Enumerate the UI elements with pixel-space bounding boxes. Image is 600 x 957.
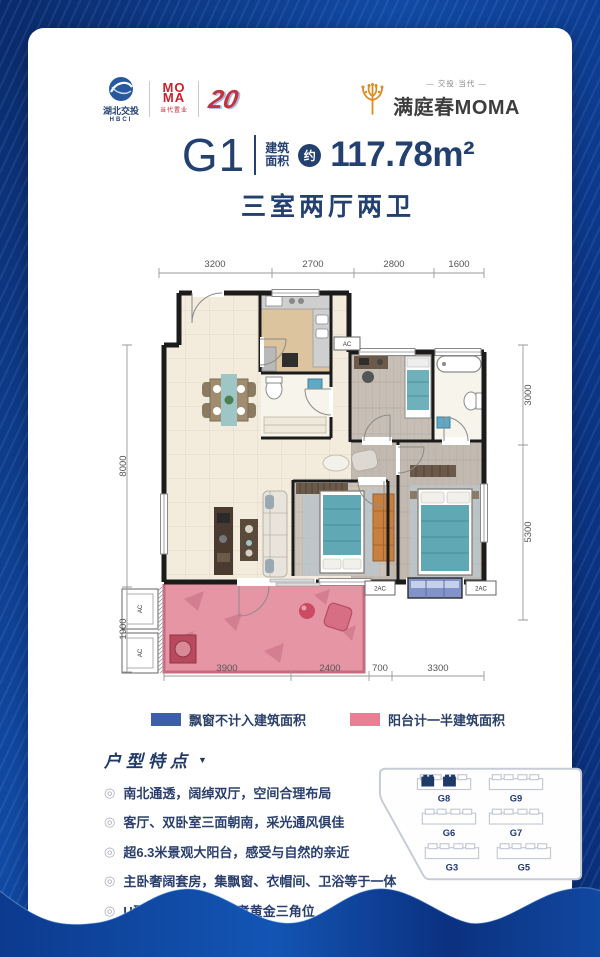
bullet-icon: ◎ xyxy=(104,815,115,828)
dim-left-1: 8000 xyxy=(118,455,129,476)
building-label: G7 xyxy=(510,828,523,838)
floor-plan: AC 2AC 2AC AC AC 3200 2700 2800 1600 390… xyxy=(114,239,538,701)
building-label: G5 xyxy=(518,862,531,872)
bay-window xyxy=(408,578,462,598)
site-boundary xyxy=(380,769,581,879)
feature-text: 客厅、双卧室三面朝南，采光通风俱佳 xyxy=(123,812,344,831)
dining-table xyxy=(202,374,256,426)
building-label: G8 xyxy=(438,793,451,803)
bottom-wave xyxy=(0,877,600,957)
legend-swatch-blue xyxy=(151,713,181,726)
ac-label: AC xyxy=(343,342,352,348)
ac-label: 2AC xyxy=(475,587,487,593)
brand-tagline: — 交投·当代 — xyxy=(426,78,487,89)
balcony xyxy=(164,584,364,672)
building-label: G3 xyxy=(446,862,459,872)
dim-bottom-2: 2400 xyxy=(319,663,340,674)
dim-right-2: 5300 xyxy=(523,521,534,542)
dim-top-2: 2700 xyxy=(302,259,323,270)
legend: 飘窗不计入建筑面积 阳台计一半建筑面积 xyxy=(28,710,600,729)
legend-label: 飘窗不计入建筑面积 xyxy=(189,710,306,729)
hbci-logo: 湖北交投 HBCI xyxy=(103,76,139,123)
moma-sub: 当代置业 xyxy=(160,106,188,116)
dim-top-4: 1600 xyxy=(448,259,469,270)
feature-item: ◎ 客厅、双卧室三面朝南，采光通风俱佳 xyxy=(104,812,409,831)
site-plan: G8 G9 G6 G7 G3 G5 xyxy=(376,764,588,886)
dim-bottom-4: 3300 xyxy=(427,663,448,674)
brand-name: 满庭春MOMA xyxy=(393,91,520,120)
moma-line2: MA xyxy=(163,93,185,103)
building-label: G9 xyxy=(510,793,523,803)
area-caption: 建筑 面积 xyxy=(265,142,289,168)
dim-bottom-1: 3900 xyxy=(216,663,237,674)
feature-item: ◎ 南北通透，阔绰双厅，空间合理布局 xyxy=(104,783,409,802)
balcony-ball xyxy=(299,603,315,619)
dim-top-1: 3200 xyxy=(204,259,225,270)
hbci-sub: HBCI xyxy=(110,117,133,123)
bedroom2-furniture xyxy=(296,483,394,575)
unit-code: G1 xyxy=(182,128,245,182)
feature-item: ◎ 超6.3米景观大阳台，感受与自然的亲近 xyxy=(104,842,409,861)
poster-page: { "header": { "hbci": { "name": "湖北交投", … xyxy=(0,0,600,957)
ac-label: AC xyxy=(138,648,144,657)
anniversary-20-badge: 20 xyxy=(206,84,240,115)
feature-text: 超6.3米景观大阳台，感受与自然的亲近 xyxy=(123,842,349,861)
hbci-globe-icon xyxy=(108,76,134,102)
legend-item-balcony: 阳台计一半建筑面积 xyxy=(350,710,505,729)
area-caption-line2: 面积 xyxy=(265,155,289,168)
features-header: 户型特点 ▼ xyxy=(104,747,409,772)
title-block: G1 建筑 面积 约 117.78m² 三室两厅两卫 xyxy=(28,128,600,223)
logo-divider xyxy=(198,81,199,117)
logo-divider xyxy=(149,81,150,117)
dim-top-3: 2800 xyxy=(383,259,404,270)
area-value: 117.78m² xyxy=(330,135,474,175)
title-divider xyxy=(254,135,256,175)
bullet-icon: ◎ xyxy=(104,845,115,858)
ac-label: AC xyxy=(138,604,144,613)
tree-icon xyxy=(359,83,386,115)
legend-swatch-pink xyxy=(350,713,380,726)
approx-circle: 约 xyxy=(298,144,321,167)
feature-text: 南北通透，阔绰双厅，空间合理布局 xyxy=(123,783,331,802)
sofa xyxy=(263,491,287,577)
legend-label: 阳台计一半建筑面积 xyxy=(388,710,505,729)
title-row: G1 建筑 面积 约 117.78m² xyxy=(182,128,474,182)
header: 湖北交投 HBCI MO MA 当代置业 20 xyxy=(103,74,520,124)
features-title: 户型特点 xyxy=(104,747,192,772)
ac-label: 2AC xyxy=(374,587,386,593)
layout-subtitle: 三室两厅两卫 xyxy=(28,187,600,223)
dim-left-2: 1900 xyxy=(118,618,129,639)
white-card: 湖北交投 HBCI MO MA 当代置业 20 xyxy=(28,28,572,957)
logo-group-left: 湖北交投 HBCI MO MA 当代置业 20 xyxy=(103,76,238,123)
triangle-down-icon: ▼ xyxy=(198,755,207,765)
building-label: G6 xyxy=(443,828,456,838)
bullet-icon: ◎ xyxy=(104,786,115,799)
dim-bottom-3: 700 xyxy=(372,663,388,674)
brand: — 交投·当代 — 满庭春MOMA xyxy=(393,78,520,120)
logo-group-right: — 交投·当代 — 满庭春MOMA xyxy=(359,78,520,120)
ottoman xyxy=(323,455,349,471)
hbci-name: 湖北交投 xyxy=(103,104,139,117)
legend-item-bay-window: 飘窗不计入建筑面积 xyxy=(151,710,306,729)
moma-logo: MO MA 当代置业 xyxy=(160,83,188,116)
dim-right-1: 3000 xyxy=(523,384,534,405)
